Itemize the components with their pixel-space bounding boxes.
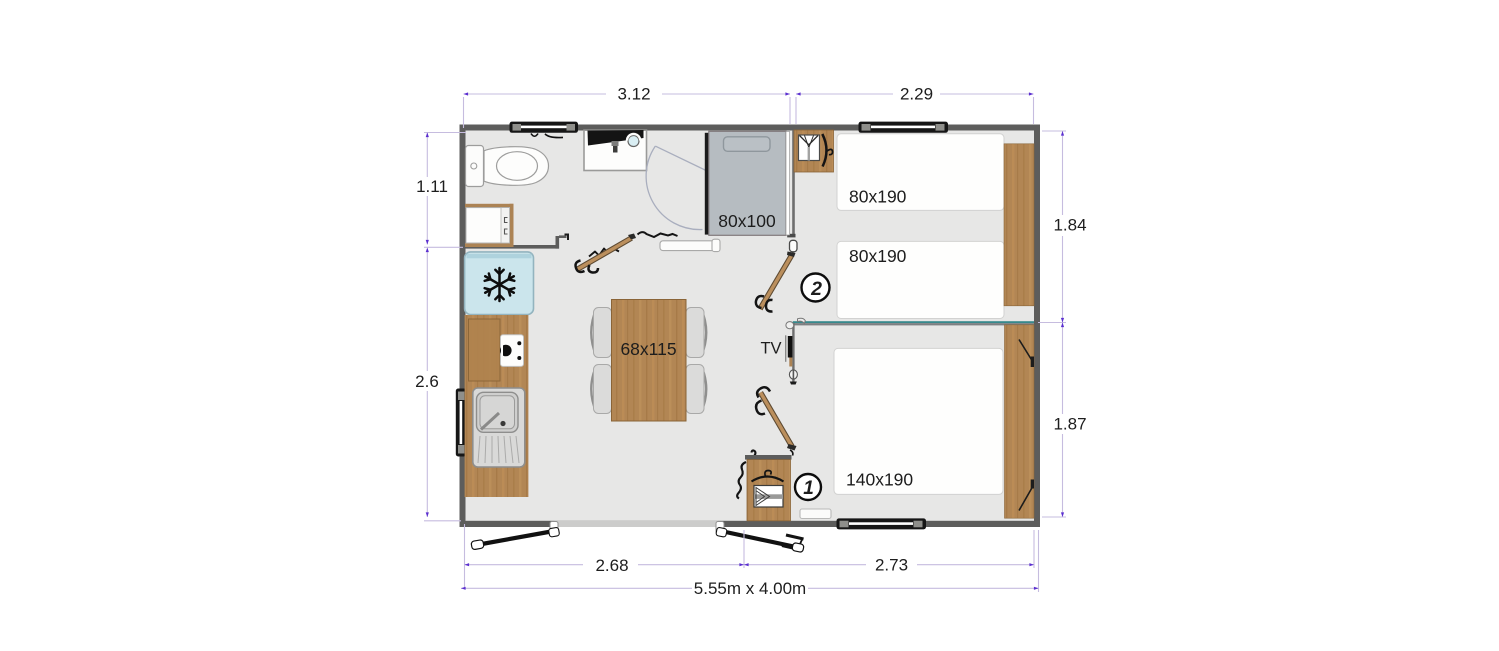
svg-text:2: 2 [810, 278, 822, 300]
svg-text:80x190: 80x190 [849, 246, 907, 266]
svg-text:TV: TV [760, 340, 781, 358]
svg-text:80x190: 80x190 [849, 187, 907, 207]
svg-text:68x115: 68x115 [620, 339, 676, 359]
svg-text:140x190: 140x190 [846, 470, 913, 490]
svg-text:5.55m x 4.00m: 5.55m x 4.00m [694, 579, 806, 598]
svg-text:3.12: 3.12 [617, 85, 650, 104]
svg-text:1.11: 1.11 [416, 177, 448, 196]
svg-text:2.73: 2.73 [875, 555, 908, 574]
svg-text:1.84: 1.84 [1053, 216, 1086, 235]
svg-text:2.6: 2.6 [415, 372, 439, 391]
svg-text:80x100: 80x100 [718, 211, 776, 231]
svg-text:1: 1 [803, 478, 814, 499]
svg-text:1.87: 1.87 [1053, 415, 1086, 434]
svg-text:2.29: 2.29 [900, 85, 933, 104]
svg-text:2.68: 2.68 [595, 556, 628, 575]
